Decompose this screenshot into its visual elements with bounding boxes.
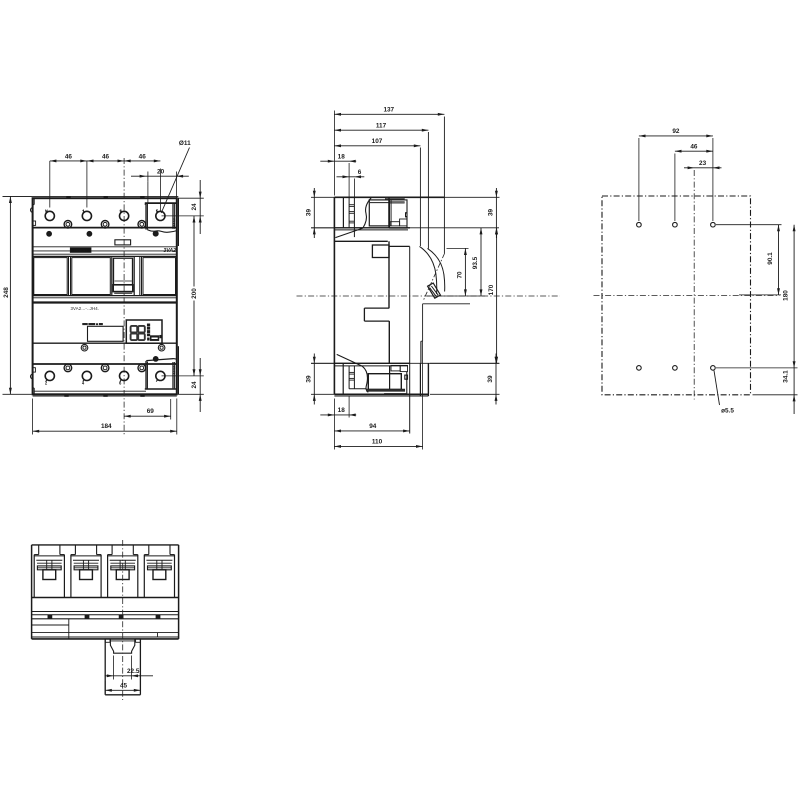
svg-text:39: 39 [487, 375, 494, 383]
svg-text:24: 24 [191, 381, 198, 389]
svg-text:184: 184 [101, 423, 112, 430]
svg-text:117: 117 [376, 123, 387, 130]
svg-text:N: N [45, 209, 48, 214]
svg-text:3VA2...-..JH4.: 3VA2...-..JH4. [71, 306, 100, 311]
svg-text:92: 92 [672, 128, 680, 135]
svg-text:ø5.5: ø5.5 [721, 408, 734, 415]
svg-text:18: 18 [338, 407, 346, 414]
svg-text:170: 170 [488, 284, 495, 295]
svg-text:46: 46 [65, 153, 73, 160]
svg-text:93.5: 93.5 [472, 256, 479, 269]
svg-text:46: 46 [690, 144, 698, 151]
svg-text:20: 20 [157, 168, 165, 175]
svg-text:39: 39 [305, 375, 312, 383]
svg-text:46: 46 [102, 153, 110, 160]
svg-text:3VA2: 3VA2 [163, 248, 176, 254]
svg-text:SIEMENS: SIEMENS [74, 248, 88, 252]
svg-text:107: 107 [372, 138, 383, 145]
svg-text:39: 39 [305, 209, 312, 217]
svg-text:46: 46 [139, 153, 147, 160]
svg-text:90.1: 90.1 [767, 252, 774, 265]
svg-text:69: 69 [147, 408, 155, 415]
svg-text:22.5: 22.5 [127, 668, 140, 675]
svg-text:34.1: 34.1 [782, 370, 789, 383]
svg-text:94: 94 [369, 423, 377, 430]
svg-text:45: 45 [120, 683, 128, 690]
svg-text:39: 39 [487, 209, 494, 217]
svg-text:180: 180 [782, 290, 789, 301]
svg-text:24: 24 [191, 203, 198, 211]
svg-text:Ø11: Ø11 [179, 140, 191, 147]
svg-text:200: 200 [191, 288, 198, 299]
svg-text:110: 110 [372, 439, 383, 446]
svg-text:18: 18 [338, 154, 346, 161]
svg-text:248: 248 [3, 287, 10, 298]
svg-text:137: 137 [383, 107, 394, 114]
svg-text:6: 6 [358, 169, 362, 176]
svg-text:70: 70 [456, 271, 463, 279]
svg-text:23: 23 [699, 160, 707, 167]
